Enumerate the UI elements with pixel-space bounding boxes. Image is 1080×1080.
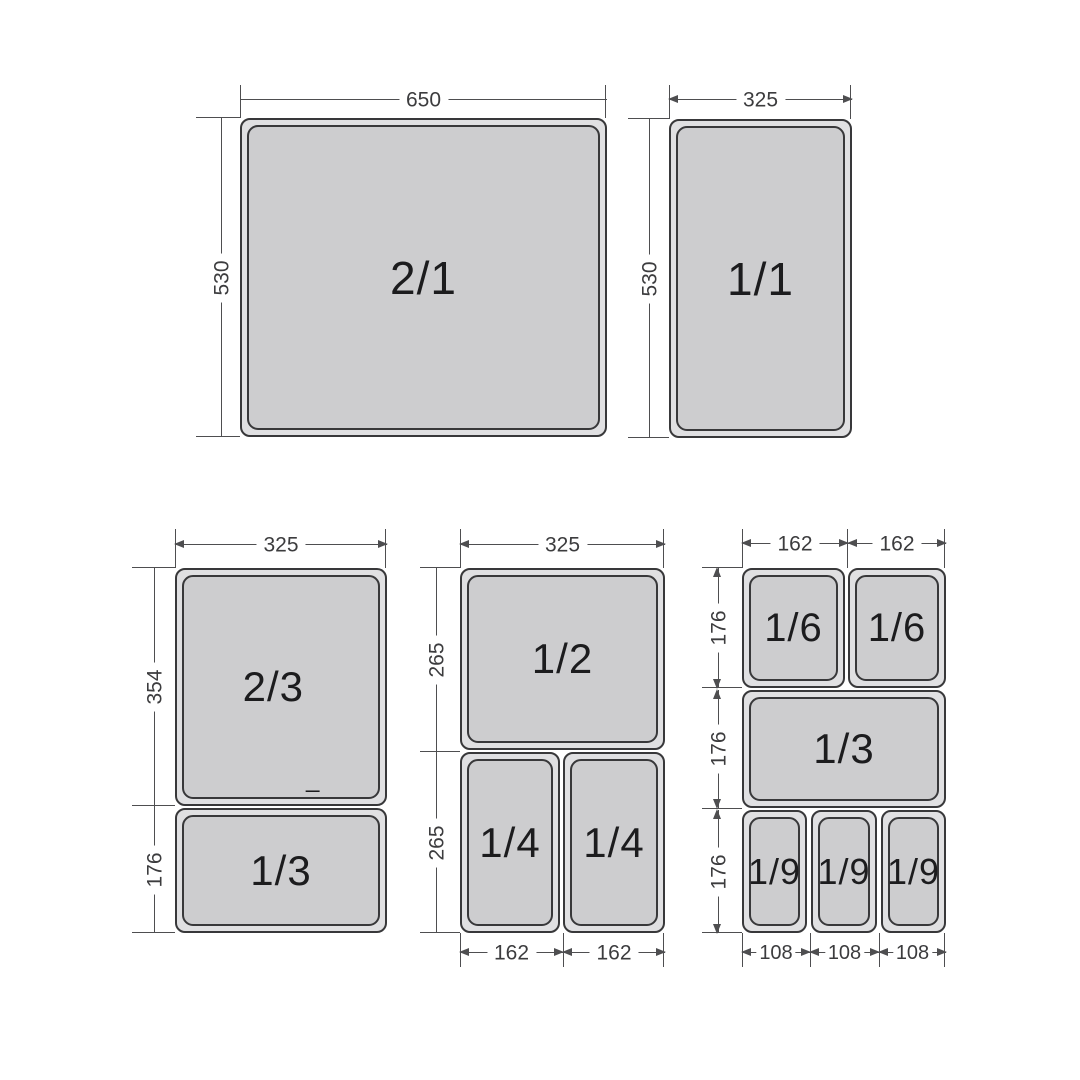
pan-1-1-inner: 1/1 [676, 126, 845, 431]
pan-1-1: 1/1 [669, 119, 852, 438]
dim-height-176-bl: 176 [154, 806, 155, 933]
pan-1-4-a-inner: 1/4 [467, 759, 553, 926]
extension-line [702, 808, 742, 809]
dim-height-176-row1: 176 [718, 568, 719, 688]
extension-line [702, 687, 742, 688]
dim-label-176: 176 [707, 847, 730, 896]
pan-1-4-b-inner: 1/4 [570, 759, 658, 926]
extension-line [702, 567, 742, 568]
dim-label-265: 265 [425, 818, 448, 867]
pan-1-9-b: 1/9 [811, 810, 877, 933]
dim-width-108-c: 108 [879, 952, 946, 953]
extension-line [175, 529, 176, 568]
pan-2-3: 2/3_ [175, 568, 387, 806]
dim-width-325-bm: 325 [460, 544, 665, 545]
dim-label-265: 265 [425, 635, 448, 684]
pan-1-9-a: 1/9 [742, 810, 807, 933]
dim-label-108: 108 [825, 942, 864, 964]
extension-line [605, 85, 606, 118]
dim-height-265-bottom: 265 [436, 752, 437, 933]
dim-height-176-row2: 176 [718, 690, 719, 808]
gn-pan-size-diagram: 650 530 2/1 325 530 1/1 325 354 176 2/ [0, 0, 1080, 1080]
pan-1-6-a-inner: 1/6 [749, 575, 838, 681]
pan-2-1-label: 2/1 [390, 255, 457, 301]
pan-1-9-c-label: 1/9 [887, 854, 940, 890]
pan-1-9-c-inner: 1/9 [888, 817, 939, 926]
pan-2-3-label-mark: _ [306, 763, 319, 797]
pan-1-9-a-inner: 1/9 [749, 817, 800, 926]
dim-width-650: 650 [240, 99, 607, 100]
dim-width-162-bm-right: 162 [563, 952, 665, 953]
pan-1-3-right-label: 1/3 [813, 728, 874, 770]
dim-label-176: 176 [707, 603, 730, 652]
dim-label-108: 108 [893, 942, 932, 964]
pan-1-9-b-inner: 1/9 [818, 817, 870, 926]
extension-line [663, 529, 664, 568]
dim-height-265-top: 265 [436, 568, 437, 752]
pan-2-3-inner: 2/3_ [182, 575, 380, 799]
pan-1-2-inner: 1/2 [467, 575, 658, 743]
pan-2-1-inner: 2/1 [247, 125, 600, 430]
dim-label-176: 176 [707, 724, 730, 773]
pan-1-2-label: 1/2 [532, 638, 593, 680]
extension-line [420, 751, 460, 752]
extension-line [702, 932, 742, 933]
extension-line [420, 932, 460, 933]
dim-label-108: 108 [756, 942, 795, 964]
pan-1-9-c: 1/9 [881, 810, 946, 933]
dim-width-325-bl: 325 [175, 544, 387, 545]
pan-1-9-b-label: 1/9 [817, 854, 870, 890]
extension-line [385, 529, 386, 568]
dim-label-162: 162 [770, 532, 819, 555]
dim-height-176-row3: 176 [718, 810, 719, 933]
pan-1-6-b-label: 1/6 [868, 608, 927, 648]
pan-1-9-a-label: 1/9 [748, 854, 801, 890]
dim-label-162: 162 [589, 941, 638, 964]
pan-1-4-a-label: 1/4 [479, 822, 540, 864]
extension-line [196, 436, 240, 437]
extension-line [420, 567, 460, 568]
pan-1-3-left-label: 1/3 [250, 850, 311, 892]
dim-label-530: 530 [210, 253, 233, 302]
dim-height-530-right: 530 [649, 119, 650, 438]
pan-1-3-left: 1/3 [175, 808, 387, 933]
pan-1-4-a: 1/4 [460, 752, 560, 933]
pan-1-4-b: 1/4 [563, 752, 665, 933]
dim-width-108-a: 108 [742, 952, 810, 953]
dim-label-325: 325 [256, 533, 305, 556]
dim-width-325-top: 325 [669, 99, 852, 100]
dim-label-325: 325 [538, 533, 587, 556]
dim-label-162: 162 [487, 941, 536, 964]
dim-width-108-b: 108 [810, 952, 879, 953]
pan-1-3-right-inner: 1/3 [749, 697, 939, 801]
extension-line [460, 529, 461, 568]
pan-1-6-a-label: 1/6 [764, 608, 823, 648]
extension-line [944, 529, 945, 568]
pan-1-2: 1/2 [460, 568, 665, 750]
dim-height-354: 354 [154, 568, 155, 806]
pan-1-3-right: 1/3 [742, 690, 946, 808]
pan-2-3-label: 2/3 [243, 666, 304, 708]
extension-line [196, 117, 240, 118]
pan-1-1-label: 1/1 [727, 256, 794, 302]
dim-label-530: 530 [638, 254, 661, 303]
dim-label-176: 176 [143, 845, 166, 894]
dim-width-162-bm-left: 162 [460, 952, 563, 953]
pan-1-6-b: 1/6 [848, 568, 946, 688]
extension-line [240, 85, 241, 118]
dim-label-650: 650 [399, 88, 448, 111]
pan-1-4-b-label: 1/4 [583, 822, 644, 864]
dim-height-530-left: 530 [221, 118, 222, 437]
pan-1-6-b-inner: 1/6 [855, 575, 939, 681]
pan-1-3-left-inner: 1/3 [182, 815, 380, 926]
pan-1-6-a: 1/6 [742, 568, 845, 688]
dim-label-162: 162 [872, 532, 921, 555]
extension-line [742, 529, 743, 568]
dim-label-325: 325 [736, 88, 785, 111]
pan-2-1: 2/1 [240, 118, 607, 437]
extension-line [847, 529, 848, 568]
dim-width-162-br-right: 162 [848, 543, 946, 544]
dim-width-162-br-left: 162 [742, 543, 848, 544]
dim-label-354: 354 [143, 662, 166, 711]
